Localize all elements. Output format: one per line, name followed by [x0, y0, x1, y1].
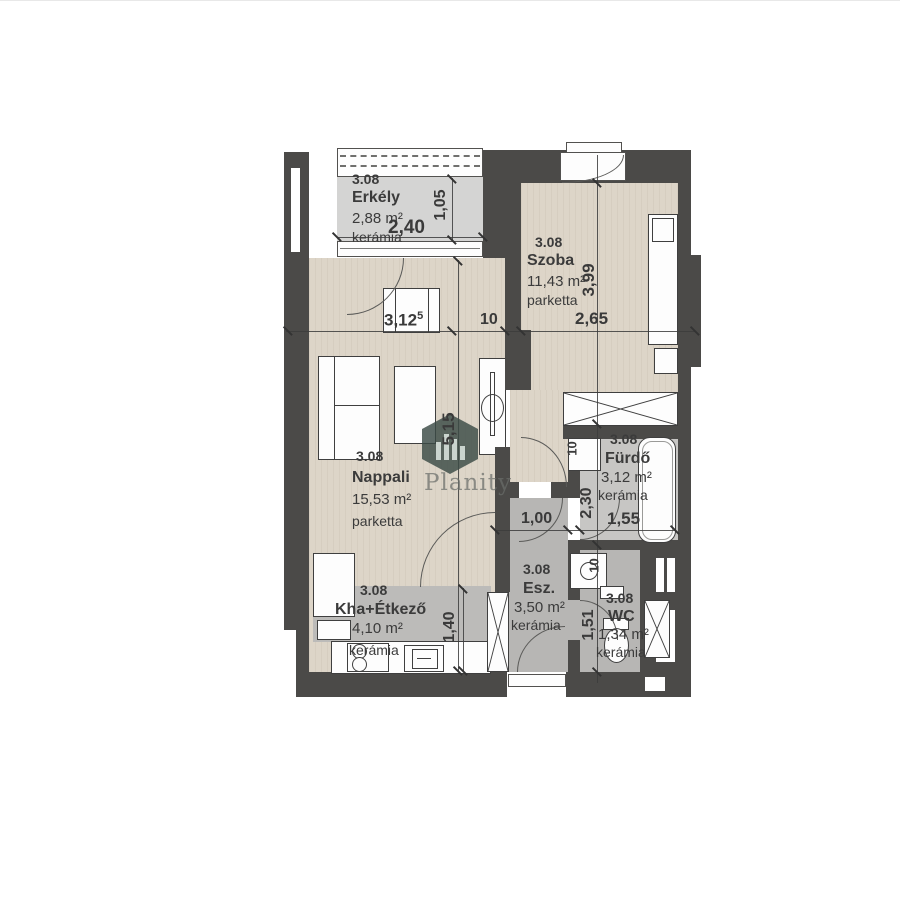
wall-nappali-szoba-block	[505, 330, 531, 390]
dim-label-szoba-width: 2,65	[575, 309, 608, 329]
sofa	[318, 356, 380, 460]
room-area: 2,88 m²	[352, 209, 403, 229]
console-inner-line-2	[428, 289, 429, 332]
wardrobe-hall	[487, 592, 509, 672]
dim-line-esz-furdo-horizontal	[495, 530, 676, 531]
balcony-railing-dash-1	[340, 155, 480, 157]
dim-label-wall-t2: 10	[565, 427, 580, 471]
room-area: 1,34 m²	[598, 626, 649, 644]
szoba-window-sill	[566, 142, 622, 153]
balcony-railing-dash-2	[340, 165, 480, 167]
entry-door-strip	[508, 674, 566, 687]
shaft-slot-1	[656, 558, 664, 592]
shaft-slot-2	[667, 558, 675, 592]
room-number: 3.08	[610, 431, 652, 449]
room-label-erkely: 3.08 Erkély 2,88 m² kerámia	[352, 170, 403, 247]
room-name: Nappali	[352, 466, 411, 489]
room-label-wc: 3.08 WC 1,34 m² kerámia	[596, 590, 649, 661]
room-floor-type: parketta	[527, 291, 585, 309]
dim-label-wall-t1: 10	[480, 311, 498, 329]
dim-label-kitchen-depth: 1,40	[441, 605, 459, 649]
wall-bottom-left	[309, 672, 507, 697]
room-area: 3,50 m²	[514, 599, 565, 618]
floor-plan: 2,40 1,05 3,125 10 2,65 3,99 5,15 1,00 2…	[0, 0, 900, 923]
room-label-kha: 3.08 Kha+Étkező 4,10 m² kerámia	[335, 582, 426, 660]
room-area: 11,43 m²	[527, 272, 585, 292]
room-name: WC	[608, 607, 649, 626]
wall-esz-wc-lower	[568, 640, 580, 683]
wall-nappali-esz	[495, 447, 510, 592]
wall-left-lower	[296, 560, 309, 697]
room-number: 3.08	[535, 233, 585, 251]
wall-bottom-right-slot	[645, 677, 665, 691]
room-number: 3.08	[523, 561, 565, 579]
dim-label-wall-t3: 10	[587, 544, 602, 588]
dim-label-furdo-depth: 2,30	[578, 481, 596, 525]
dim-superscript: 5	[417, 310, 423, 322]
wall-nappali-szoba	[505, 182, 521, 332]
room-label-esz: 3.08 Esz. 3,50 m² kerámia	[511, 561, 565, 635]
bed-pillow	[652, 218, 674, 242]
page-top-border	[0, 0, 900, 1]
room-floor-type: kerámia	[352, 228, 403, 246]
room-label-szoba: 3.08 Szoba 11,43 m² parketta	[527, 233, 585, 310]
room-name: Fürdő	[605, 449, 652, 469]
planity-watermark-text: Planity	[424, 470, 512, 496]
room-label-furdo: 3.08 Fürdő 3,12 m² kerámia	[598, 431, 652, 505]
room-floor-type: kerámia	[349, 642, 426, 660]
room-number: 3.08	[356, 446, 411, 466]
wall-right	[678, 150, 691, 697]
sofa-backrest-line	[334, 357, 335, 459]
room-number: 3.08	[360, 582, 426, 600]
room-name: Erkély	[352, 188, 403, 209]
dim-line-main-horizontal	[286, 331, 696, 332]
room-name: Esz.	[523, 579, 565, 599]
dim-line-kitchen-vertical	[463, 588, 464, 672]
dim-label-esz-width: 1,00	[521, 510, 552, 528]
planity-logo-building-bar	[460, 446, 465, 460]
room-floor-type: kerámia	[596, 644, 649, 661]
nightstand	[654, 348, 678, 374]
dim-label-nappali-width: 3,125	[384, 310, 423, 331]
dim-label-balcony-depth: 1,05	[432, 183, 450, 227]
dim-label-nappali-depth: 5,15	[439, 407, 459, 451]
room-floor-type: kerámia	[511, 617, 565, 635]
room-number: 3.08	[352, 170, 403, 188]
dim-label-furdo-width: 1,55	[607, 509, 640, 529]
tv-dish	[481, 394, 504, 422]
wardrobe-szoba	[563, 392, 678, 426]
room-area: 15,53 m²	[352, 489, 411, 511]
room-floor-type: parketta	[352, 511, 411, 531]
room-number: 3.08	[606, 590, 649, 607]
room-area: 4,10 m²	[352, 620, 426, 639]
room-floor-type: kerámia	[598, 487, 652, 505]
room-name: Kha+Étkező	[335, 600, 426, 620]
room-label-nappali: 3.08 Nappali 15,53 m² parketta	[352, 446, 411, 532]
wall-left-window-slot	[291, 168, 300, 252]
room-area: 3,12 m²	[601, 469, 652, 488]
balcony-window-glass-line	[340, 248, 480, 249]
dim-value: 3,12	[384, 311, 417, 330]
wall-right-step	[691, 255, 701, 367]
wall-balcony-right	[483, 150, 507, 258]
sofa-cushion-line	[334, 405, 379, 406]
dim-line-balcony-depth	[452, 178, 453, 241]
room-name: Szoba	[527, 251, 585, 272]
